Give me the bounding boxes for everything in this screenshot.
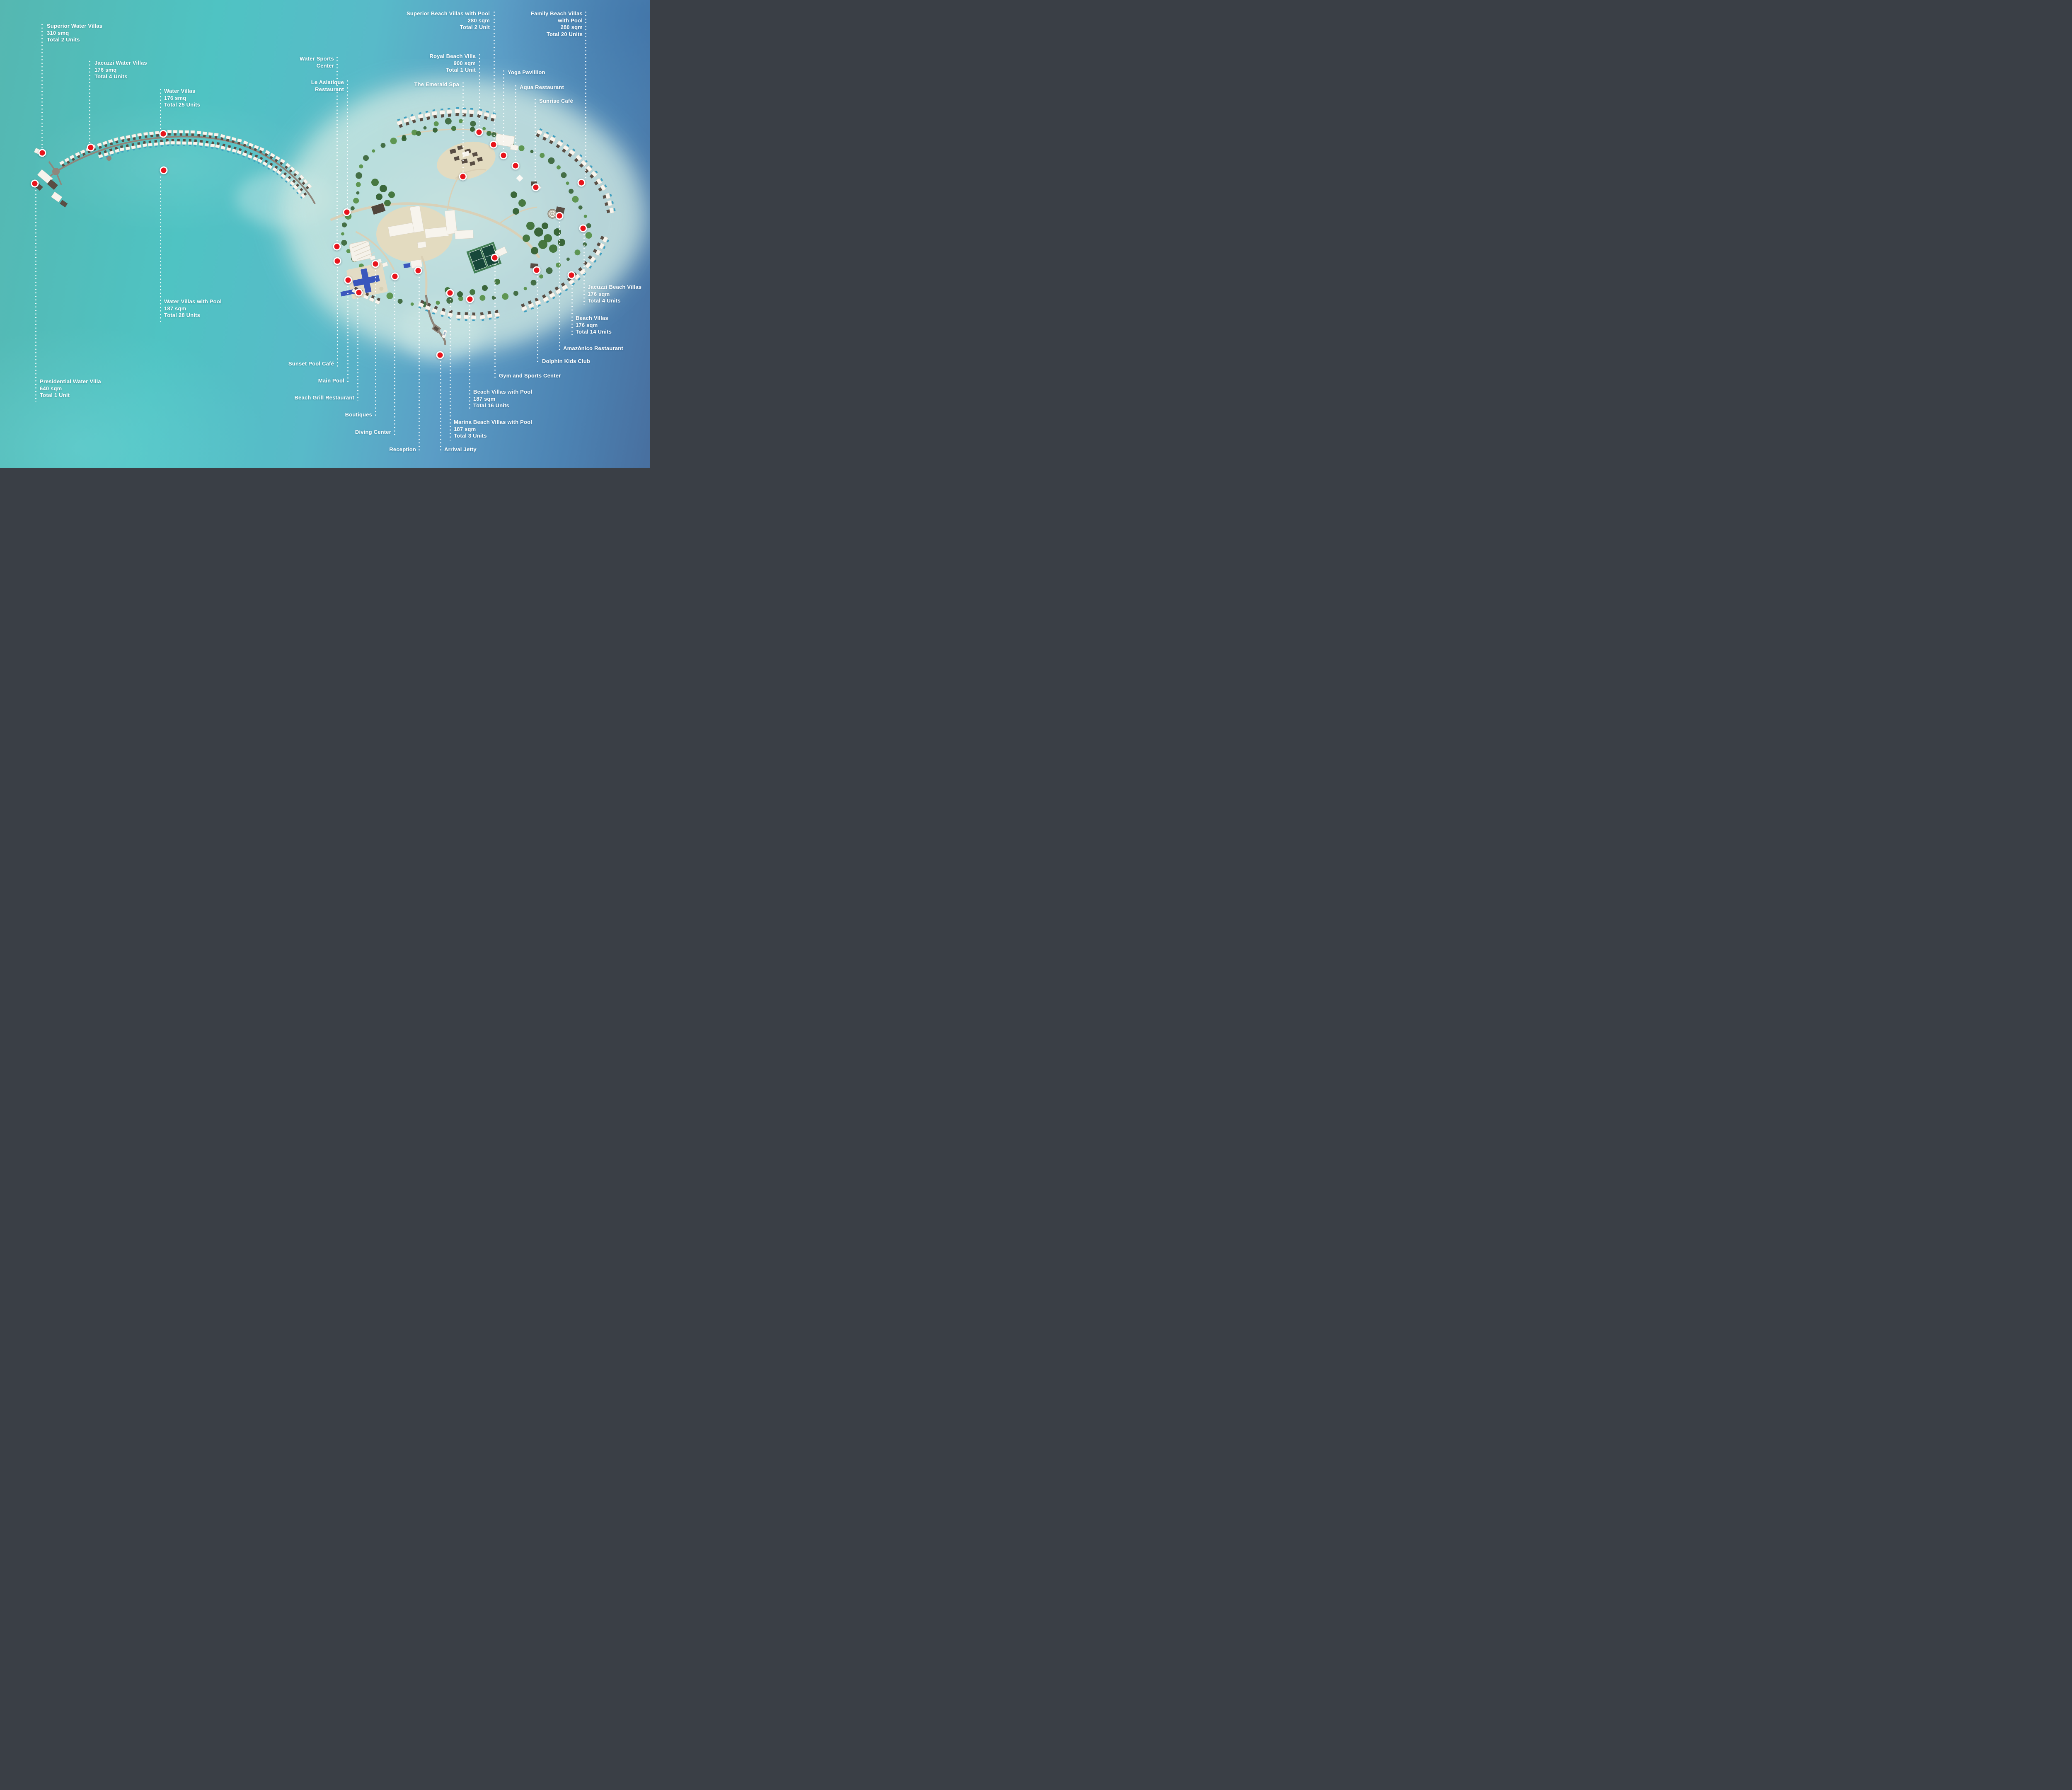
label-text: Total 25 Units bbox=[164, 102, 200, 109]
map-label-presidential-water-villa: Presidential Water Villa640 sqmTotal 1 U… bbox=[40, 378, 101, 399]
label-text: Restaurant bbox=[311, 86, 344, 93]
label-text: 280 sqm bbox=[531, 24, 583, 31]
label-text: Total 20 Units bbox=[531, 31, 583, 38]
map-label-beach-villas-with-pool: Beach Villas with Pool187 sqmTotal 16 Un… bbox=[473, 389, 532, 409]
resort-map: Superior Water Villas310 smqTotal 2 Unit… bbox=[0, 0, 650, 468]
map-label-arrival-jetty: Arrival Jetty bbox=[444, 446, 477, 453]
label-text: Total 16 Units bbox=[473, 402, 532, 409]
label-text: 310 smq bbox=[47, 30, 102, 37]
labels-layer: Superior Water Villas310 smqTotal 2 Unit… bbox=[0, 0, 650, 468]
label-text: Total 1 Unit bbox=[429, 67, 476, 74]
label-text: Sunset Pool Café bbox=[288, 360, 334, 368]
label-text: Jacuzzi Beach Villas bbox=[588, 284, 641, 291]
label-text: Water Sports bbox=[300, 56, 334, 63]
label-text: Presidential Water Villa bbox=[40, 378, 101, 385]
label-text: Center bbox=[300, 63, 334, 70]
map-label-family-beach-villas-with-pool: Family Beach Villaswith Pool280 sqmTotal… bbox=[531, 10, 583, 38]
label-text: Superior Beach Villas with Pool bbox=[407, 10, 490, 17]
map-label-reception: Reception bbox=[389, 446, 416, 453]
label-text: Total 28 Units bbox=[164, 312, 222, 319]
label-text: Beach Grill Restaurant bbox=[294, 394, 354, 402]
label-text: 176 smq bbox=[164, 95, 200, 102]
label-text: 640 sqm bbox=[40, 385, 101, 392]
label-text: Total 4 Units bbox=[588, 298, 641, 305]
label-text: Royal Beach Villa bbox=[429, 53, 476, 60]
label-text: Total 2 Unit bbox=[407, 24, 490, 31]
map-label-jacuzzi-beach-villas: Jacuzzi Beach Villas176 sqmTotal 4 Units bbox=[588, 284, 641, 305]
map-label-jacuzzi-water-villas: Jacuzzi Water Villas176 smqTotal 4 Units bbox=[94, 60, 147, 80]
label-text: Boutiques bbox=[345, 411, 372, 418]
label-text: 176 sqm bbox=[576, 322, 612, 329]
label-text: Yoga Pavillion bbox=[508, 69, 545, 76]
map-label-sunset-pool-cafe: Sunset Pool Café bbox=[288, 360, 334, 368]
label-text: Jacuzzi Water Villas bbox=[94, 60, 147, 67]
label-text: Beach Villas with Pool bbox=[473, 389, 532, 396]
map-label-yoga-pavillion: Yoga Pavillion bbox=[508, 69, 545, 76]
label-text: Total 2 Units bbox=[47, 36, 102, 44]
label-text: Diving Center bbox=[355, 429, 391, 436]
label-text: with Pool bbox=[531, 17, 583, 24]
label-text: 900 sqm bbox=[429, 60, 476, 67]
map-label-superior-beach-villas-with-pool: Superior Beach Villas with Pool280 sqmTo… bbox=[407, 10, 490, 31]
label-text: Water Villas with Pool bbox=[164, 298, 222, 305]
map-label-beach-grill-restaurant: Beach Grill Restaurant bbox=[294, 394, 354, 402]
label-text: Water Villas bbox=[164, 88, 200, 95]
label-text: Family Beach Villas bbox=[531, 10, 583, 17]
map-label-sunrise-cafe: Sunrise Café bbox=[539, 98, 573, 105]
label-text: Gym and Sports Center bbox=[499, 373, 561, 380]
map-label-water-sports-center: Water SportsCenter bbox=[300, 56, 334, 69]
map-label-royal-beach-villa: Royal Beach Villa900 sqmTotal 1 Unit bbox=[429, 53, 476, 74]
map-label-beach-villas: Beach Villas176 sqmTotal 14 Units bbox=[576, 315, 612, 336]
label-text: Le Asiatique bbox=[311, 79, 344, 86]
label-text: Main Pool bbox=[318, 377, 344, 385]
map-label-gym-and-sports-center: Gym and Sports Center bbox=[499, 373, 561, 380]
map-label-superior-water-villas: Superior Water Villas310 smqTotal 2 Unit… bbox=[47, 23, 102, 44]
map-label-dolphin-kids-club: Dolphin Kids Club bbox=[542, 358, 590, 365]
label-text: Amazònico Restaurant bbox=[563, 345, 623, 352]
label-text: Total 1 Unit bbox=[40, 392, 101, 399]
map-label-water-villas: Water Villas176 smqTotal 25 Units bbox=[164, 88, 200, 109]
label-text: 280 sqm bbox=[407, 17, 490, 24]
label-text: Dolphin Kids Club bbox=[542, 358, 590, 365]
map-label-boutiques: Boutiques bbox=[345, 411, 372, 418]
label-text: 187 sqm bbox=[164, 305, 222, 312]
label-text: Aqua Restaurant bbox=[520, 84, 564, 91]
map-label-diving-center: Diving Center bbox=[355, 429, 391, 436]
map-label-the-emerald-spa: The Emerald Spa bbox=[414, 81, 459, 88]
label-text: 176 smq bbox=[94, 67, 147, 74]
map-label-le-asiatique-restaurant: Le AsiatiqueRestaurant bbox=[311, 79, 344, 93]
label-text: 187 sqm bbox=[454, 426, 532, 433]
label-text: Total 14 Units bbox=[576, 329, 612, 336]
label-text: Beach Villas bbox=[576, 315, 612, 322]
map-label-main-pool: Main Pool bbox=[318, 377, 344, 385]
label-text: Arrival Jetty bbox=[444, 446, 477, 453]
label-text: Total 4 Units bbox=[94, 73, 147, 80]
label-text: Sunrise Café bbox=[539, 98, 573, 105]
label-text: Reception bbox=[389, 446, 416, 453]
map-label-marina-beach-villas-with-pool: Marina Beach Villas with Pool187 sqmTota… bbox=[454, 419, 532, 440]
label-text: Superior Water Villas bbox=[47, 23, 102, 30]
map-label-amazonico-restaurant: Amazònico Restaurant bbox=[563, 345, 623, 352]
map-label-aqua-restaurant: Aqua Restaurant bbox=[520, 84, 564, 91]
label-text: The Emerald Spa bbox=[414, 81, 459, 88]
label-text: 187 sqm bbox=[473, 396, 532, 403]
label-text: Marina Beach Villas with Pool bbox=[454, 419, 532, 426]
label-text: Total 3 Units bbox=[454, 433, 532, 440]
label-text: 176 sqm bbox=[588, 291, 641, 298]
map-label-water-villas-with-pool: Water Villas with Pool187 sqmTotal 28 Un… bbox=[164, 298, 222, 319]
